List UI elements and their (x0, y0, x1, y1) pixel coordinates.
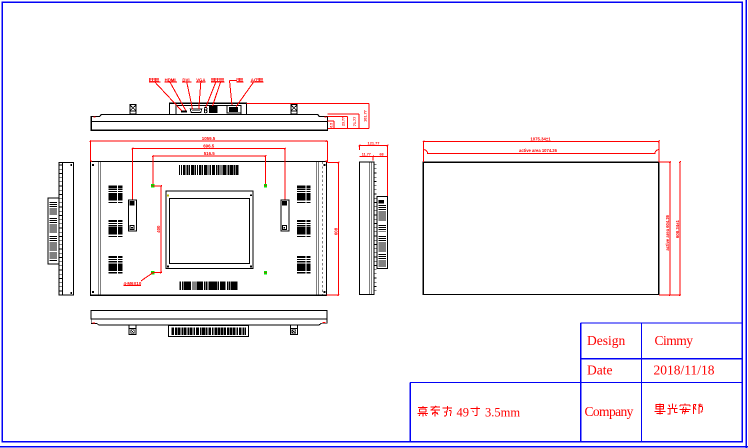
svg-text:3.5mm: 3.5mm (485, 405, 520, 419)
svg-text:Cimmy: Cimmy (655, 333, 694, 348)
svg-text:Date: Date (587, 363, 612, 378)
svg-text:6.5: 6.5 (330, 123, 334, 128)
svg-text:101.77: 101.77 (363, 110, 367, 122)
svg-text:49: 49 (457, 405, 470, 419)
svg-text:Design: Design (587, 333, 625, 348)
svg-text:400: 400 (156, 225, 161, 233)
svg-text:active area 1074.26: active area 1074.26 (519, 148, 558, 153)
svg-text:516.5: 516.5 (204, 151, 216, 156)
svg-text:11.77: 11.77 (362, 152, 371, 156)
svg-text:2018/11/18: 2018/11/18 (654, 363, 715, 378)
svg-text:Company: Company (585, 404, 634, 419)
svg-text:608.34±1: 608.34±1 (675, 219, 680, 238)
svg-text:1075.34±1: 1075.34±1 (530, 136, 551, 141)
svg-text:23.77: 23.77 (342, 117, 346, 126)
svg-text:68: 68 (379, 152, 383, 156)
svg-text:1059.5: 1059.5 (202, 136, 216, 141)
svg-text:active area 604.26: active area 604.26 (665, 214, 670, 250)
svg-text:4-M6X10: 4-M6X10 (124, 281, 142, 286)
svg-text:71.77: 71.77 (353, 117, 357, 127)
svg-text:121.77: 121.77 (368, 141, 380, 146)
svg-text:608: 608 (333, 227, 338, 235)
svg-text:696.5: 696.5 (203, 144, 215, 149)
